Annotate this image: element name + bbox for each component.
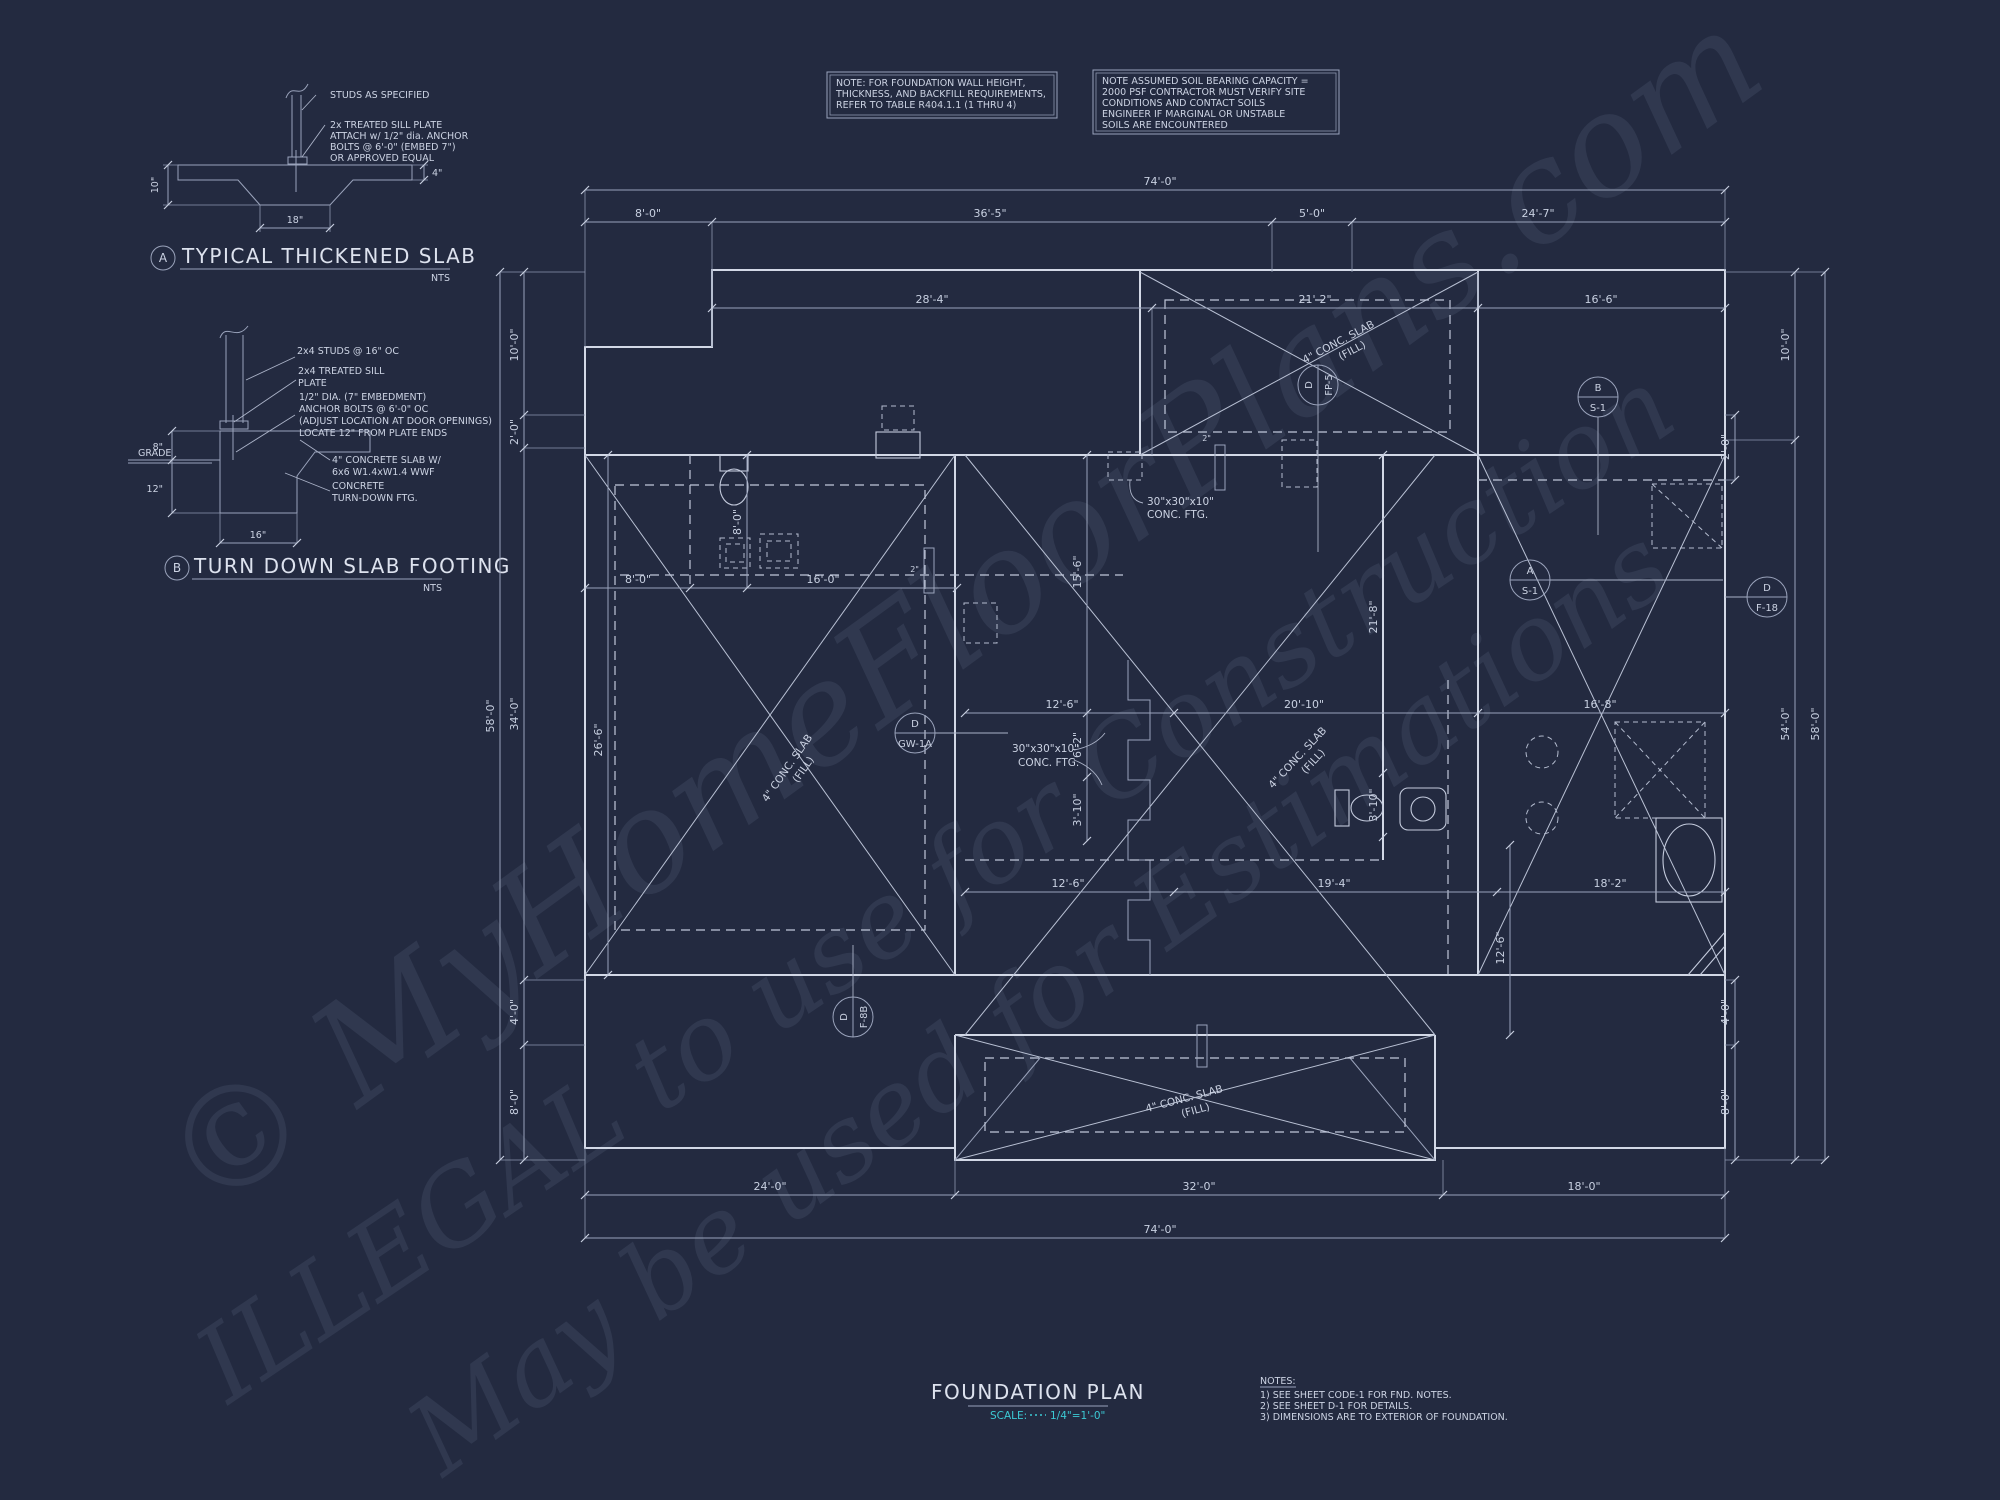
dim-label: 3'-10" bbox=[1071, 793, 1084, 826]
dim-label: 21'-2" bbox=[1298, 293, 1331, 306]
dim-label: 24'-7" bbox=[1521, 207, 1554, 220]
note-line: NOTE ASSUMED SOIL BEARING CAPACITY = bbox=[1102, 76, 1309, 87]
dim-label: 15'-6" bbox=[1071, 555, 1084, 588]
ftg-label-line1: 30"x30"x10" bbox=[1147, 496, 1214, 508]
callout-letter: A bbox=[1527, 566, 1534, 577]
dim-below-grade: 12" bbox=[147, 484, 163, 495]
detail-scale: NTS bbox=[423, 583, 442, 594]
detail-bubble-letter: A bbox=[159, 251, 168, 265]
dim-label: 2'-0" bbox=[1719, 434, 1732, 460]
dim-label: 20'-10" bbox=[1284, 698, 1324, 711]
sill-label-2: ATTACH w/ 1/2" dia. ANCHOR bbox=[330, 131, 469, 142]
callout-sheet: GW-1A bbox=[898, 739, 932, 750]
bolts-label-3: (ADJUST LOCATION AT DOOR OPENINGS) bbox=[299, 416, 492, 427]
note-line: SOILS ARE ENCOUNTERED bbox=[1102, 120, 1228, 131]
dim-label: 8'-0" bbox=[1719, 1089, 1732, 1115]
dim-label: 24'-0" bbox=[753, 1180, 786, 1193]
detail-title: TYPICAL THICKENED SLAB bbox=[181, 244, 476, 268]
dim-label: 8'-0" bbox=[625, 573, 651, 586]
callout-letter: D bbox=[1304, 381, 1315, 389]
pier-size-label: 2" bbox=[1202, 434, 1211, 443]
slab-label-1: 4" CONCRETE SLAB W/ bbox=[332, 455, 442, 466]
notes-title: NOTES: bbox=[1260, 1376, 1296, 1387]
dim-label: 58'-0" bbox=[1809, 707, 1822, 740]
note-line: NOTE: FOR FOUNDATION WALL HEIGHT, bbox=[836, 78, 1026, 89]
dim-label: 12'-6" bbox=[1045, 698, 1078, 711]
pier-size-label: 2" bbox=[910, 565, 919, 574]
dim-label: 21'-8" bbox=[1367, 600, 1380, 633]
callout-sheet: FP-5 bbox=[1324, 374, 1335, 396]
dim-label: 32'-0" bbox=[1182, 1180, 1215, 1193]
dim-label: 16'-8" bbox=[1583, 698, 1616, 711]
dim-label: 4'-0" bbox=[508, 999, 521, 1025]
dim-label: 58'-0" bbox=[484, 699, 497, 732]
studs-label: STUDS AS SPECIFIED bbox=[330, 90, 429, 101]
slab-label-2: 6x6 W1.4xW1.4 WWF bbox=[332, 467, 435, 478]
callout-letter: D bbox=[1763, 583, 1771, 594]
callout-letter: D bbox=[839, 1013, 850, 1021]
note-line: CONDITIONS AND CONTACT SOILS bbox=[1102, 98, 1265, 109]
ftg-label-line2: CONC. FTG. bbox=[1147, 509, 1208, 521]
dim-label: 18'-2" bbox=[1593, 877, 1626, 890]
dim-label: 19'-4" bbox=[1317, 877, 1350, 890]
blueprint-sheet: © MyHomeFloorPlans.com ILLEGAL to use fo… bbox=[0, 0, 2000, 1500]
dim-width: 18" bbox=[287, 215, 303, 226]
foundation-plan-drawing: © MyHomeFloorPlans.com ILLEGAL to use fo… bbox=[0, 0, 2000, 1500]
bolts-label-4: LOCATE 12" FROM PLATE ENDS bbox=[299, 428, 447, 439]
callout-sheet: F-18 bbox=[1756, 603, 1778, 614]
callout-fp5: D FP-5 bbox=[1298, 365, 1338, 405]
turndown-label-1: CONCRETE bbox=[332, 481, 384, 492]
sill-label-1: 2x TREATED SILL PLATE bbox=[330, 120, 442, 131]
dim-label: 54'-0" bbox=[1779, 707, 1792, 740]
dim-label: 26'-6" bbox=[592, 723, 605, 756]
callout-sheet: S-1 bbox=[1522, 586, 1538, 597]
dim-label: 12'-6" bbox=[1494, 931, 1507, 964]
notes-line: 2) SEE SHEET D-1 FOR DETAILS. bbox=[1260, 1401, 1412, 1412]
sill-label-3: BOLTS @ 6'-0" (EMBED 7") bbox=[330, 142, 456, 153]
note-line: THICKNESS, AND BACKFILL REQUIREMENTS, bbox=[835, 89, 1046, 100]
dim-label: 74'-0" bbox=[1143, 1223, 1176, 1236]
dim-label: 12'-6" bbox=[1051, 877, 1084, 890]
dim-slab: 4" bbox=[432, 168, 442, 179]
dim-above-grade: 8" bbox=[153, 442, 163, 453]
callout-sheet: F-8B bbox=[859, 1006, 870, 1029]
dim-label: 3'-10" bbox=[1367, 788, 1380, 821]
sill-label-4: OR APPROVED EQUAL bbox=[330, 153, 435, 164]
dim-label: 8'-0" bbox=[508, 1089, 521, 1115]
detail-bubble-letter: B bbox=[173, 561, 181, 575]
callout-f8b: D F-8B bbox=[833, 997, 873, 1037]
dim-label: 74'-0" bbox=[1143, 175, 1176, 188]
callout-gw1a: D GW-1A bbox=[895, 713, 935, 753]
dim-label: 18'-0" bbox=[1567, 1180, 1600, 1193]
ftg-label-line2: CONC. FTG. bbox=[1018, 757, 1079, 769]
dim-depth: 10" bbox=[150, 177, 161, 193]
dim-label: 8'-0" bbox=[635, 207, 661, 220]
callout-b-s1: B S-1 bbox=[1578, 377, 1618, 417]
callout-a-s1: A S-1 bbox=[1510, 560, 1550, 600]
callout-f18: D F-18 bbox=[1747, 577, 1787, 617]
dim-width: 16" bbox=[250, 530, 266, 541]
sill-label-1: 2x4 TREATED SILL bbox=[298, 366, 385, 377]
dim-label: 36'-5" bbox=[973, 207, 1006, 220]
callout-letter: D bbox=[911, 719, 919, 730]
notes-line: 3) DIMENSIONS ARE TO EXTERIOR OF FOUNDAT… bbox=[1260, 1412, 1508, 1423]
scale-label: SCALE: bbox=[990, 1410, 1027, 1422]
studs-label: 2x4 STUDS @ 16" OC bbox=[297, 346, 399, 357]
dim-label: 8'-0" bbox=[731, 509, 744, 535]
bolts-label-2: ANCHOR BOLTS @ 6'-0" OC bbox=[299, 404, 429, 415]
detail-scale: NTS bbox=[431, 273, 450, 284]
sheet-title: FOUNDATION PLAN bbox=[931, 1380, 1145, 1404]
dim-label: 28'-4" bbox=[915, 293, 948, 306]
dim-label: 2'-0" bbox=[508, 419, 521, 445]
dim-label: 5'-0" bbox=[1299, 207, 1325, 220]
dim-label: 16'-0" bbox=[806, 573, 839, 586]
scale-value: 1/4"=1'-0" bbox=[1050, 1410, 1105, 1422]
note-line: REFER TO TABLE R404.1.1 (1 THRU 4) bbox=[836, 100, 1016, 111]
notes-line: 1) SEE SHEET CODE-1 FOR FND. NOTES. bbox=[1260, 1390, 1452, 1401]
detail-title: TURN DOWN SLAB FOOTING bbox=[193, 554, 511, 578]
note-line: 2000 PSF CONTRACTOR MUST VERIFY SITE bbox=[1102, 87, 1305, 98]
callout-sheet: S-1 bbox=[1590, 403, 1606, 414]
sill-label-2: PLATE bbox=[298, 378, 327, 389]
dim-label: 16'-6" bbox=[1584, 293, 1617, 306]
dim-label: 10'-0" bbox=[508, 328, 521, 361]
dim-label: 10'-0" bbox=[1779, 328, 1792, 361]
dim-label: 4'-0" bbox=[1719, 999, 1732, 1025]
bolts-label-1: 1/2" DIA. (7" EMBEDMENT) bbox=[299, 392, 426, 403]
callout-letter: B bbox=[1595, 383, 1602, 394]
dim-label: 34'-0" bbox=[508, 697, 521, 730]
turndown-label-2: TURN-DOWN FTG. bbox=[331, 493, 418, 504]
note-line: ENGINEER IF MARGINAL OR UNSTABLE bbox=[1102, 109, 1285, 120]
ftg-label-line1: 30"x30"x10" bbox=[1012, 743, 1079, 755]
